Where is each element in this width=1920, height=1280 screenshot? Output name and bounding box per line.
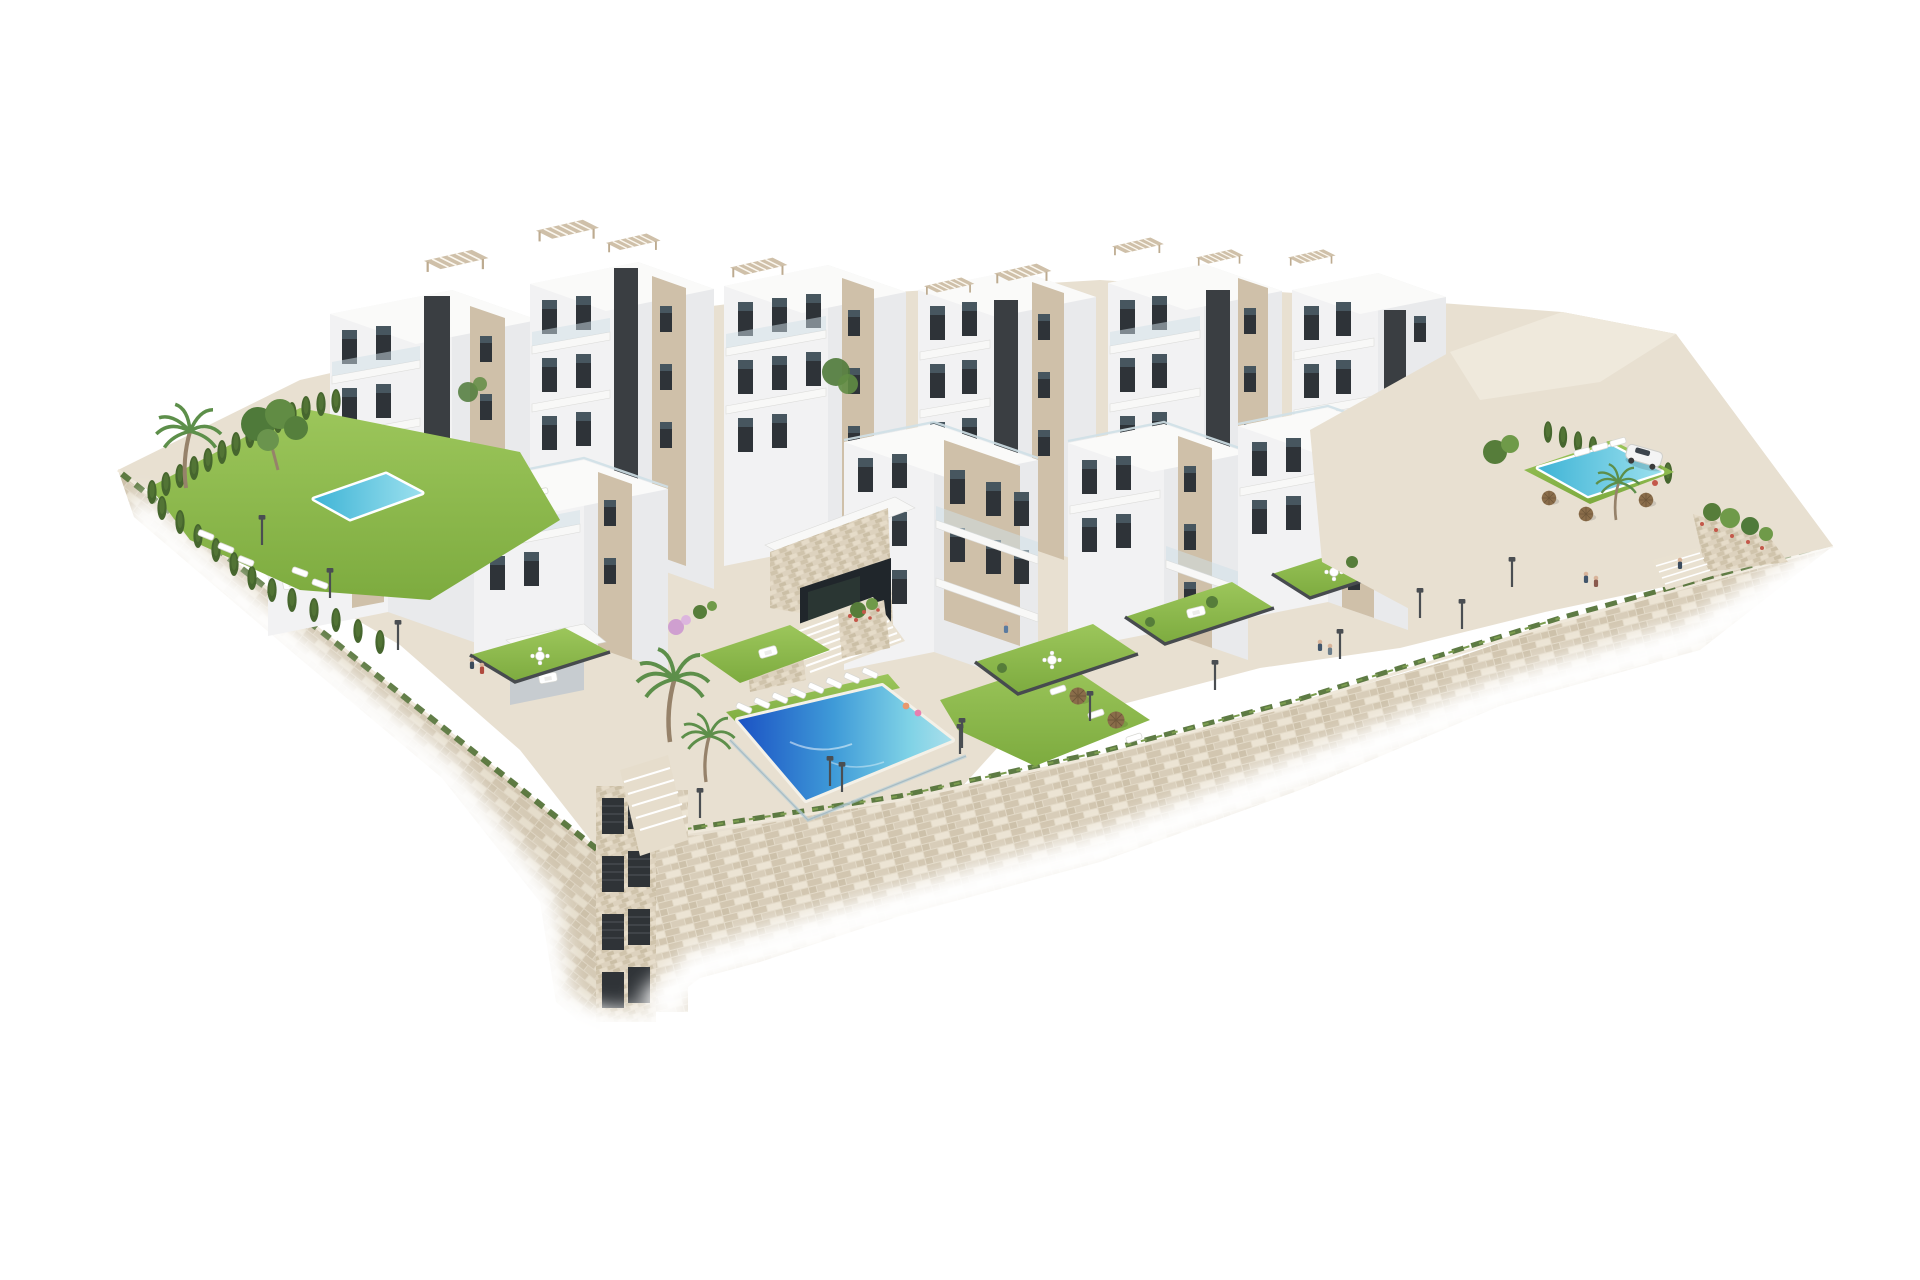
render-canvas: hillside residential complex on stone re… <box>0 0 1920 1280</box>
architectural-render: hillside residential complex on stone re… <box>0 0 1920 1280</box>
rooftop-pergola <box>424 250 488 272</box>
